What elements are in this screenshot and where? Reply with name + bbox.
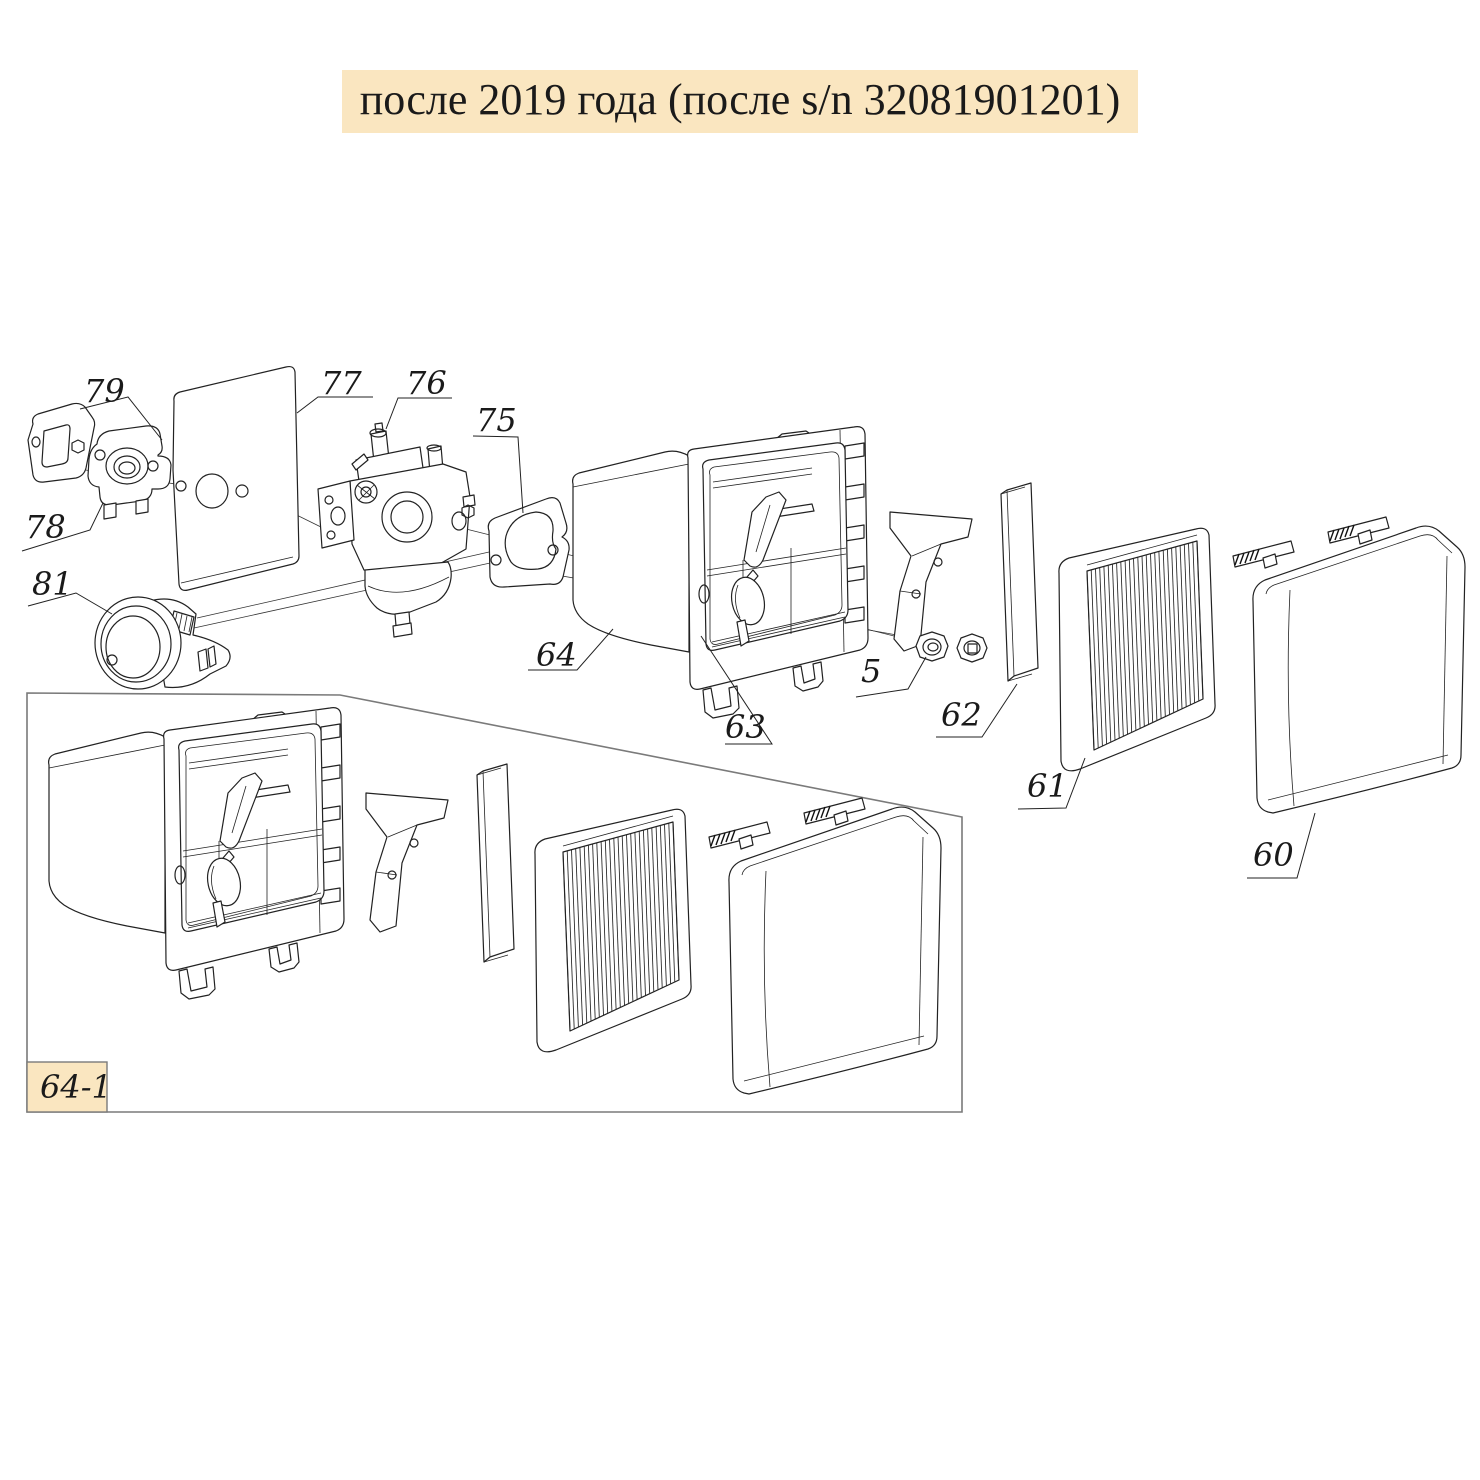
insulator-78: [88, 426, 171, 519]
variant-tag-label: 64-1: [40, 1068, 112, 1106]
gasket-79: [28, 403, 95, 482]
callout-77: 77: [297, 364, 373, 413]
callout-64: 64: [528, 629, 613, 674]
carburetor-gasket-75: [488, 498, 569, 587]
filter-element: [1059, 528, 1215, 771]
air-filter-cover: [1233, 517, 1465, 813]
svg-text:77: 77: [321, 364, 362, 402]
callout-60: 60: [1247, 813, 1315, 878]
svg-text:79: 79: [84, 372, 125, 410]
svg-text:62: 62: [941, 696, 982, 734]
callout-62: 62: [936, 684, 1017, 737]
callout-81: 81: [28, 565, 112, 614]
air-filter-housing: [573, 427, 868, 718]
svg-text:81: 81: [32, 565, 73, 603]
svg-text:76: 76: [406, 364, 447, 402]
cover-latch-tab: [1233, 541, 1294, 568]
flange-nut: [957, 634, 987, 662]
svg-text:60: 60: [1253, 836, 1294, 874]
svg-text:63: 63: [725, 708, 766, 746]
callout-78: 78: [22, 503, 103, 551]
callout-5: 5: [856, 652, 926, 697]
flange-nuts: [916, 632, 987, 662]
sealing-strip: [1001, 483, 1038, 681]
variant-tag: 64-1: [27, 1062, 112, 1112]
svg-text:75: 75: [476, 401, 517, 439]
air-filter-assembly-variant: [49, 708, 941, 1094]
svg-text:5: 5: [861, 652, 881, 690]
exploded-view-drawing: 64-1 79 78 81 77 76: [0, 0, 1480, 1480]
flange-nut: [916, 632, 948, 661]
svg-text:61: 61: [1027, 767, 1068, 805]
callout-75: 75: [473, 401, 523, 513]
parts-diagram-page: после 2019 года (после s/n 32081901201): [0, 0, 1480, 1480]
carburetor-76: [318, 423, 475, 637]
svg-text:78: 78: [25, 508, 66, 546]
mounting-bracket: [890, 512, 972, 651]
heat-shield-plate-77: [173, 367, 299, 591]
callout-76: 76: [386, 364, 452, 429]
intake-silencer-81: [95, 597, 230, 689]
air-filter-assembly: [573, 427, 1465, 813]
svg-text:64: 64: [536, 636, 577, 674]
